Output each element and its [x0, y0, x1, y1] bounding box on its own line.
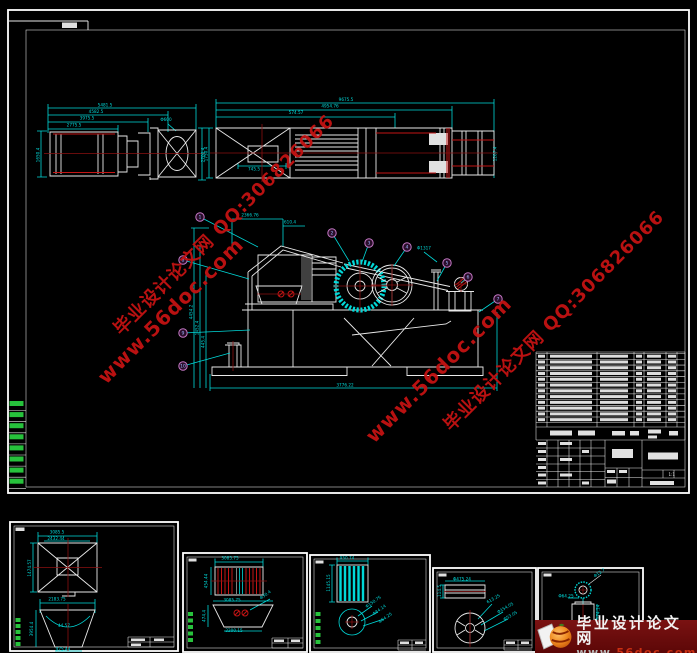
revision-strip-text	[10, 412, 24, 417]
part-balloon-number: 6	[467, 275, 470, 281]
logo-site-name: 毕业设计论文网	[576, 616, 697, 646]
bom-cell-text	[647, 372, 661, 375]
bom-cell-text	[636, 401, 642, 404]
dimension-label: 1474.57	[27, 559, 32, 577]
dimension-label: 445.4	[201, 336, 206, 348]
bom-table	[536, 352, 685, 440]
bom-cell-text	[600, 372, 628, 375]
dimension-label: 1145.15	[326, 574, 331, 592]
dimension-label: 950.74	[340, 556, 355, 561]
part-balloon-number: 3	[368, 241, 371, 247]
bom-cell-text	[538, 360, 545, 363]
dimension-label: 2183.75	[48, 597, 66, 602]
dimension-label: 3975.5	[80, 116, 95, 121]
revision-strip-text	[188, 619, 193, 623]
bom-cell-text	[668, 401, 676, 404]
bom-cell-text	[647, 418, 661, 421]
bom-cell-text	[647, 412, 661, 415]
revision-strip-text	[10, 434, 24, 439]
bom-cell-text	[538, 418, 545, 421]
thumbnail-sheet-2	[183, 553, 307, 652]
revision-strip-text	[316, 619, 321, 623]
bom-cell-text	[600, 418, 628, 421]
bom-cell-text	[636, 355, 642, 358]
title-block: 1:1	[536, 440, 685, 487]
part-balloon-number: 10	[180, 364, 186, 370]
bom-cell-text	[550, 384, 592, 387]
bom-cell-text	[600, 355, 628, 358]
bom-cell-text	[538, 401, 545, 404]
bom-cell-text	[550, 412, 592, 415]
bom-cell-text	[636, 366, 642, 369]
bom-cell-text	[636, 372, 642, 375]
bom-cell-text	[600, 366, 628, 369]
bom-cell-text	[538, 395, 545, 398]
bom-cell-text	[600, 360, 628, 363]
bom-cell-text	[550, 418, 592, 421]
revision-strip-text	[316, 640, 321, 644]
bom-cell-text	[600, 407, 628, 410]
thumbnail-sheet-1	[10, 522, 178, 651]
thumbnail-sheet-4	[433, 568, 536, 652]
dimension-label: 1650.4	[36, 147, 41, 162]
bom-cell-text	[538, 384, 545, 387]
revision-strip-text	[10, 457, 24, 462]
dimension-label: 975.44	[56, 647, 71, 652]
dimension-label: 3776.22	[336, 383, 354, 388]
bom-cell-text	[647, 401, 661, 404]
dimension-label: 610.4	[284, 220, 296, 225]
logo-ball-icon	[535, 620, 574, 653]
bom-cell-text	[668, 407, 676, 410]
bom-cell-text	[636, 412, 642, 415]
dimension-label: 2432.44	[47, 536, 65, 541]
bom-cell-text	[538, 412, 545, 415]
bom-cell-text	[668, 360, 676, 363]
revision-strip-text	[188, 625, 193, 629]
bom-cell-text	[538, 372, 545, 375]
bom-cell-text	[550, 395, 592, 398]
bom-cell-text	[538, 366, 545, 369]
part-balloon-number: 4	[406, 245, 409, 251]
bom-cell-text	[668, 389, 676, 392]
bom-cell-text	[550, 378, 592, 381]
dimension-label: 2775.5	[67, 123, 82, 128]
dimension-label: 1452.4	[195, 320, 200, 335]
revision-strip-text	[316, 626, 321, 630]
revision-strip-text	[16, 642, 21, 646]
bom-cell-text	[538, 378, 545, 381]
dimension-label: 3085.75	[223, 598, 241, 603]
bom-cell-text	[647, 395, 661, 398]
dimension-label: Φ475.24	[453, 577, 471, 582]
dimension-label: 4954.76	[321, 104, 339, 109]
dimension-label: 3085.75	[221, 556, 239, 561]
dimension-label: Φ30.4	[259, 589, 272, 601]
revision-strip-text	[316, 633, 321, 637]
bom-cell-text	[550, 366, 592, 369]
part-balloon-number: 5	[446, 261, 449, 267]
bom-cell-text	[647, 389, 661, 392]
dimension-label: 3085.5	[50, 530, 65, 535]
bom-cell-text	[668, 355, 676, 358]
bom-cell-text	[647, 378, 661, 381]
bom-cell-text	[636, 389, 642, 392]
revision-strip-text	[16, 618, 21, 622]
dimension-label: 1207.4	[493, 146, 498, 161]
revision-strip-text	[316, 612, 321, 616]
revision-strip-text	[10, 401, 24, 406]
revision-strip-text	[16, 624, 21, 628]
part-balloon-number: 9	[182, 331, 185, 337]
bom-cell-text	[668, 372, 676, 375]
revision-strip-text	[188, 632, 193, 636]
part-balloon-number: 1	[199, 215, 202, 221]
dimension-label: 5481.5	[98, 103, 113, 108]
bom-cell-text	[647, 355, 661, 358]
dimension-label: 44.57	[58, 623, 70, 628]
logo-site-url: www.56doc.com	[576, 647, 697, 653]
dimension-label: 114.5	[437, 585, 442, 597]
dimension-label: Φ600	[160, 117, 172, 122]
bom-cell-text	[636, 384, 642, 387]
revision-strip-text	[10, 479, 24, 484]
dimension-label: Φ1317	[417, 246, 431, 251]
dimension-label: 474.4	[202, 610, 207, 622]
bom-cell-text	[647, 407, 661, 410]
dimension-label: 454.44	[204, 573, 209, 588]
side-view-drawing	[37, 104, 206, 180]
bom-header-row	[550, 430, 678, 439]
bom-cell-text	[636, 378, 642, 381]
bom-cell-text	[668, 384, 676, 387]
bom-cell-text	[600, 389, 628, 392]
bom-cell-text	[550, 372, 592, 375]
dimension-label: 9675.5	[339, 97, 354, 102]
bom-cell-text	[647, 360, 661, 363]
dimension-label: Φ64.25	[558, 594, 574, 599]
bom-cell-text	[550, 401, 592, 404]
bom-cell-text	[550, 360, 592, 363]
bom-cell-text	[550, 389, 592, 392]
revision-strip-text	[16, 636, 21, 640]
bom-cell-text	[668, 366, 676, 369]
cad-preview-image: 1:1	[0, 0, 697, 653]
bom-cell-text	[636, 407, 642, 410]
revision-strip	[8, 401, 321, 646]
scale-value: 1:1	[669, 472, 676, 477]
bom-cell-text	[538, 389, 545, 392]
revision-strip-text	[10, 445, 24, 450]
part-balloon-number: 2	[331, 231, 334, 237]
dimension-label: 613.25	[486, 593, 501, 605]
dimension-label: 3954.4	[29, 621, 34, 636]
bom-cell-text	[600, 401, 628, 404]
part-name-text	[648, 453, 678, 460]
sheet-corner-label	[62, 23, 77, 29]
revision-strip-text	[188, 612, 193, 616]
cad-drawing-canvas: 1:1	[0, 0, 697, 653]
bom-cell-text	[668, 395, 676, 398]
dimension-label: Φ53.05	[502, 610, 518, 622]
dimension-label: 1750.4	[204, 146, 209, 161]
revision-strip-text	[10, 423, 24, 428]
bom-cell-text	[636, 395, 642, 398]
dimension-label: 4582.5	[89, 109, 104, 114]
bom-cell-text	[636, 360, 642, 363]
bom-cell-text	[647, 384, 661, 387]
bom-cell-text	[668, 418, 676, 421]
bom-cell-text	[550, 355, 592, 358]
bom-cell-text	[600, 395, 628, 398]
bom-cell-text	[600, 384, 628, 387]
revision-strip-text	[16, 630, 21, 634]
bom-cell-text	[550, 407, 592, 410]
bom-cell-text	[636, 418, 642, 421]
revision-strip-text	[188, 638, 193, 642]
bom-cell-text	[668, 378, 676, 381]
bom-cell-text	[668, 412, 676, 415]
revision-strip-text	[10, 468, 24, 473]
bom-cell-text	[538, 355, 545, 358]
dimension-label: Φ64.25	[377, 611, 393, 624]
bom-cell-text	[538, 407, 545, 410]
bom-cell-text	[600, 412, 628, 415]
bom-cell-text	[647, 366, 661, 369]
dimension-label: 2200.15	[225, 628, 243, 633]
drawing-title-text	[612, 449, 633, 458]
site-logo: 毕业设计论文网 www.56doc.com	[535, 620, 697, 653]
bom-cell-text	[600, 378, 628, 381]
dimension-label: 574.57	[289, 110, 304, 115]
